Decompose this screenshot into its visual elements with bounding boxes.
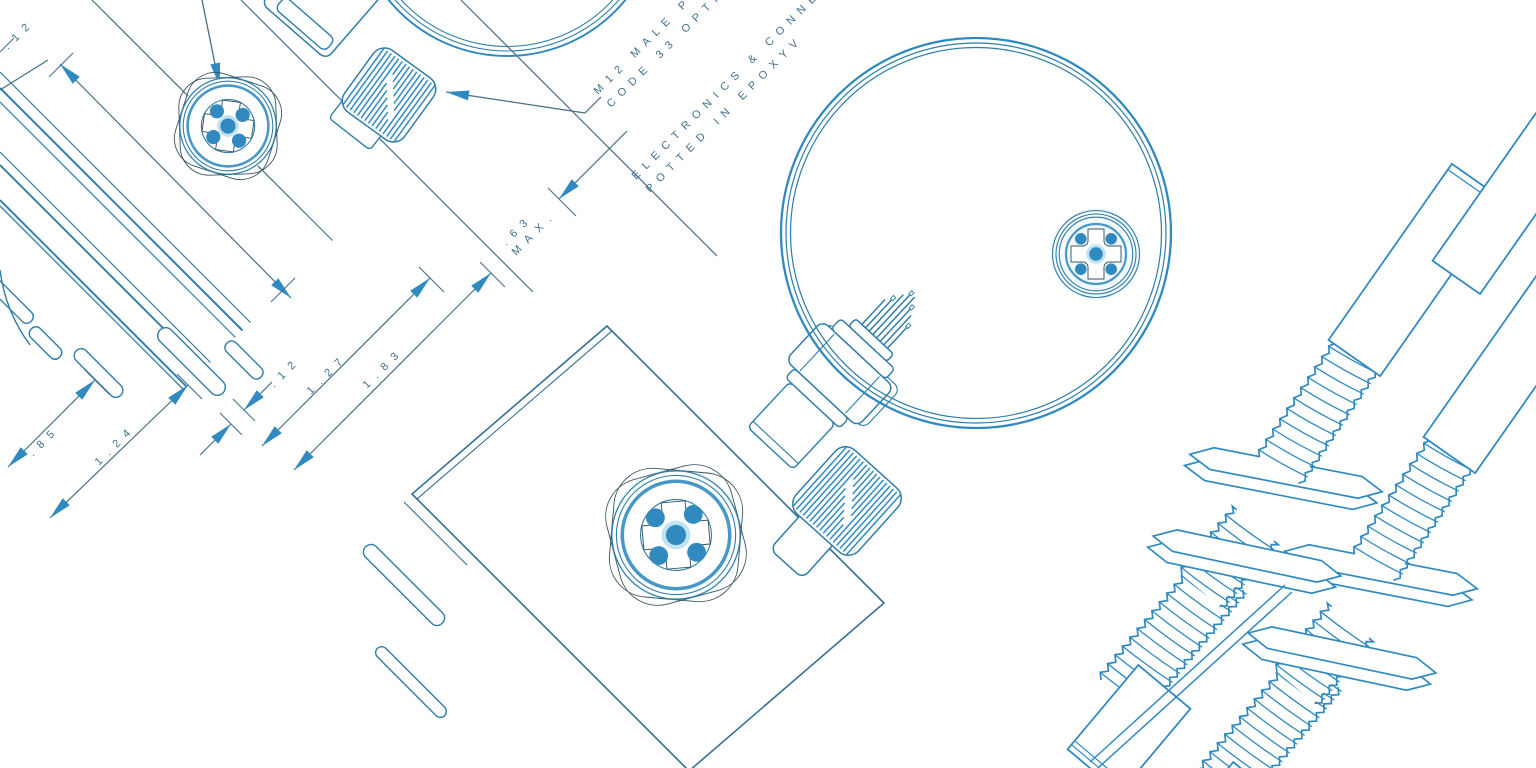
svg-text:1.24: 1.24	[93, 422, 139, 468]
svg-text:.85: .85	[27, 423, 63, 459]
svg-text:1.27: 1.27	[305, 351, 351, 397]
svg-text:.12: .12	[2, 16, 38, 52]
svg-text:POTTED IN EPOXYV: POTTED IN EPOXYV	[644, 33, 806, 195]
svg-text:.12: .12	[268, 354, 304, 390]
svg-text:1.83: 1.83	[361, 345, 407, 391]
